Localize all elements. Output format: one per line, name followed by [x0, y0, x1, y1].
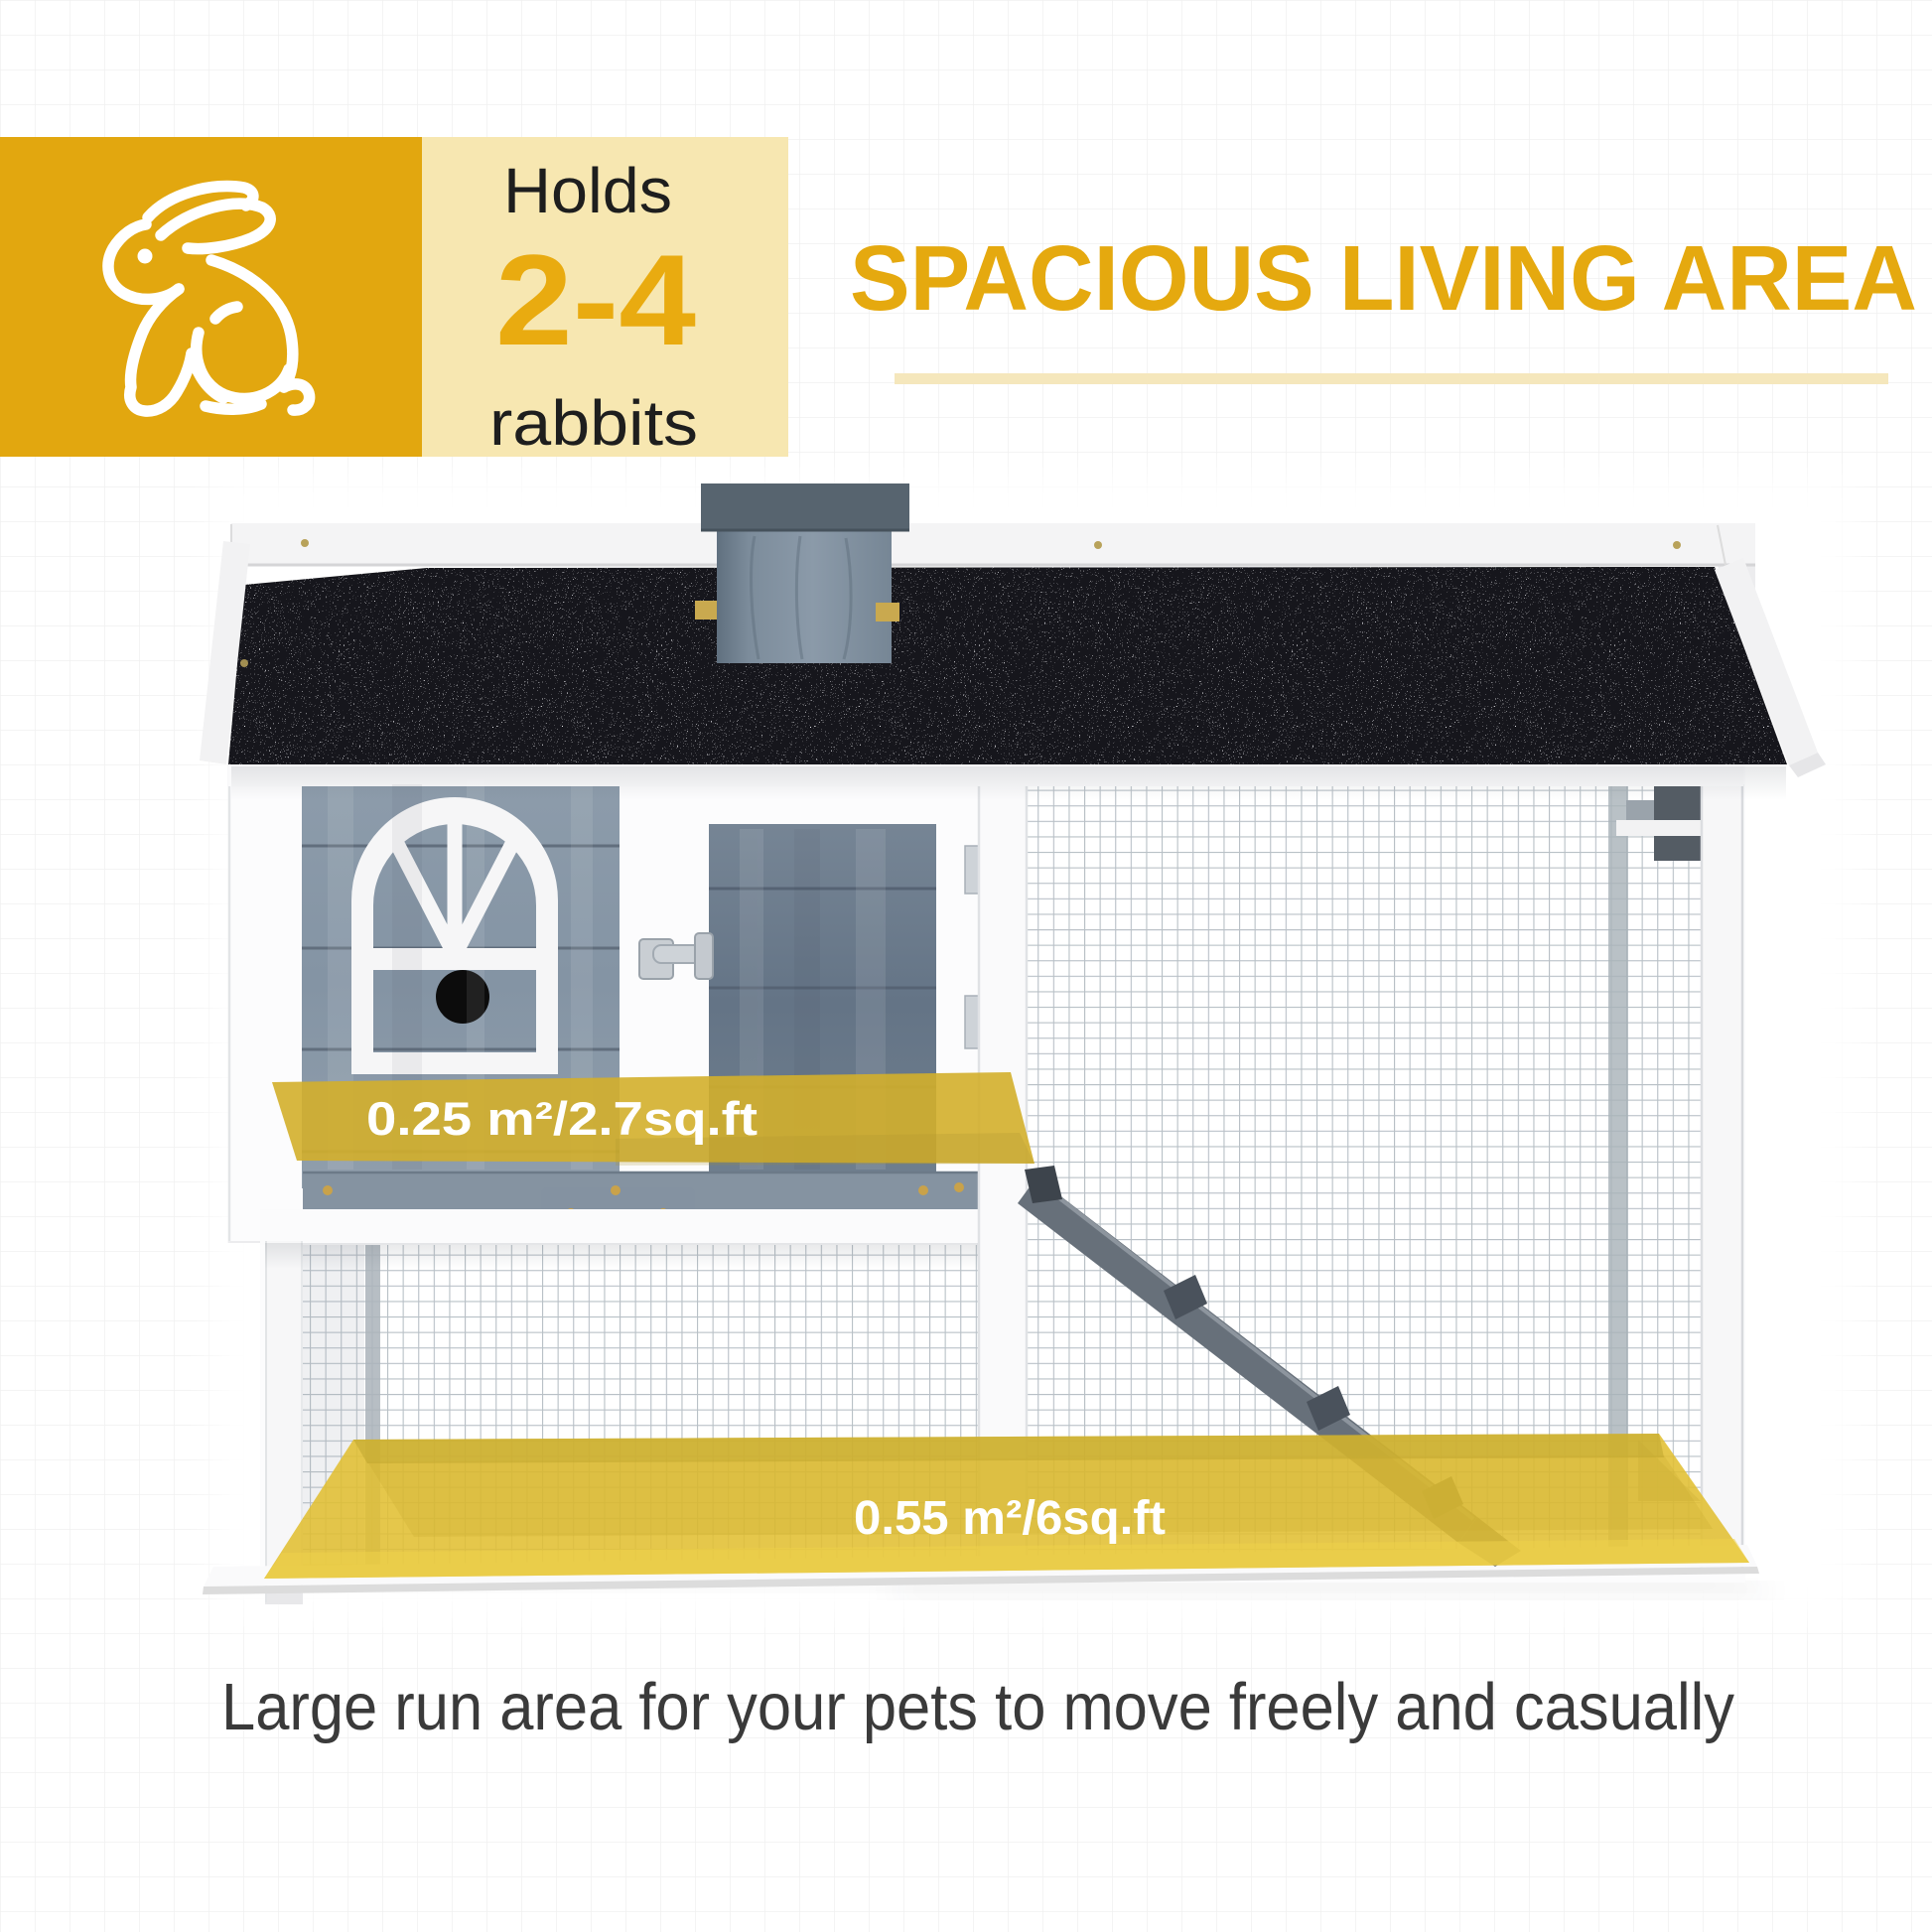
svg-text:0.55 m²/6sq.ft: 0.55 m²/6sq.ft [854, 1492, 1166, 1545]
svg-text:Holds: Holds [503, 155, 672, 226]
svg-text:0.25 m²/2.7sq.ft: 0.25 m²/2.7sq.ft [366, 1092, 758, 1145]
svg-text:rabbits: rabbits [489, 387, 698, 459]
svg-text:2-4: 2-4 [495, 227, 696, 372]
svg-text:Large run area for your pets t: Large run area for your pets to move fre… [221, 1670, 1734, 1744]
svg-text:SPACIOUS LIVING AREA: SPACIOUS LIVING AREA [850, 226, 1917, 330]
